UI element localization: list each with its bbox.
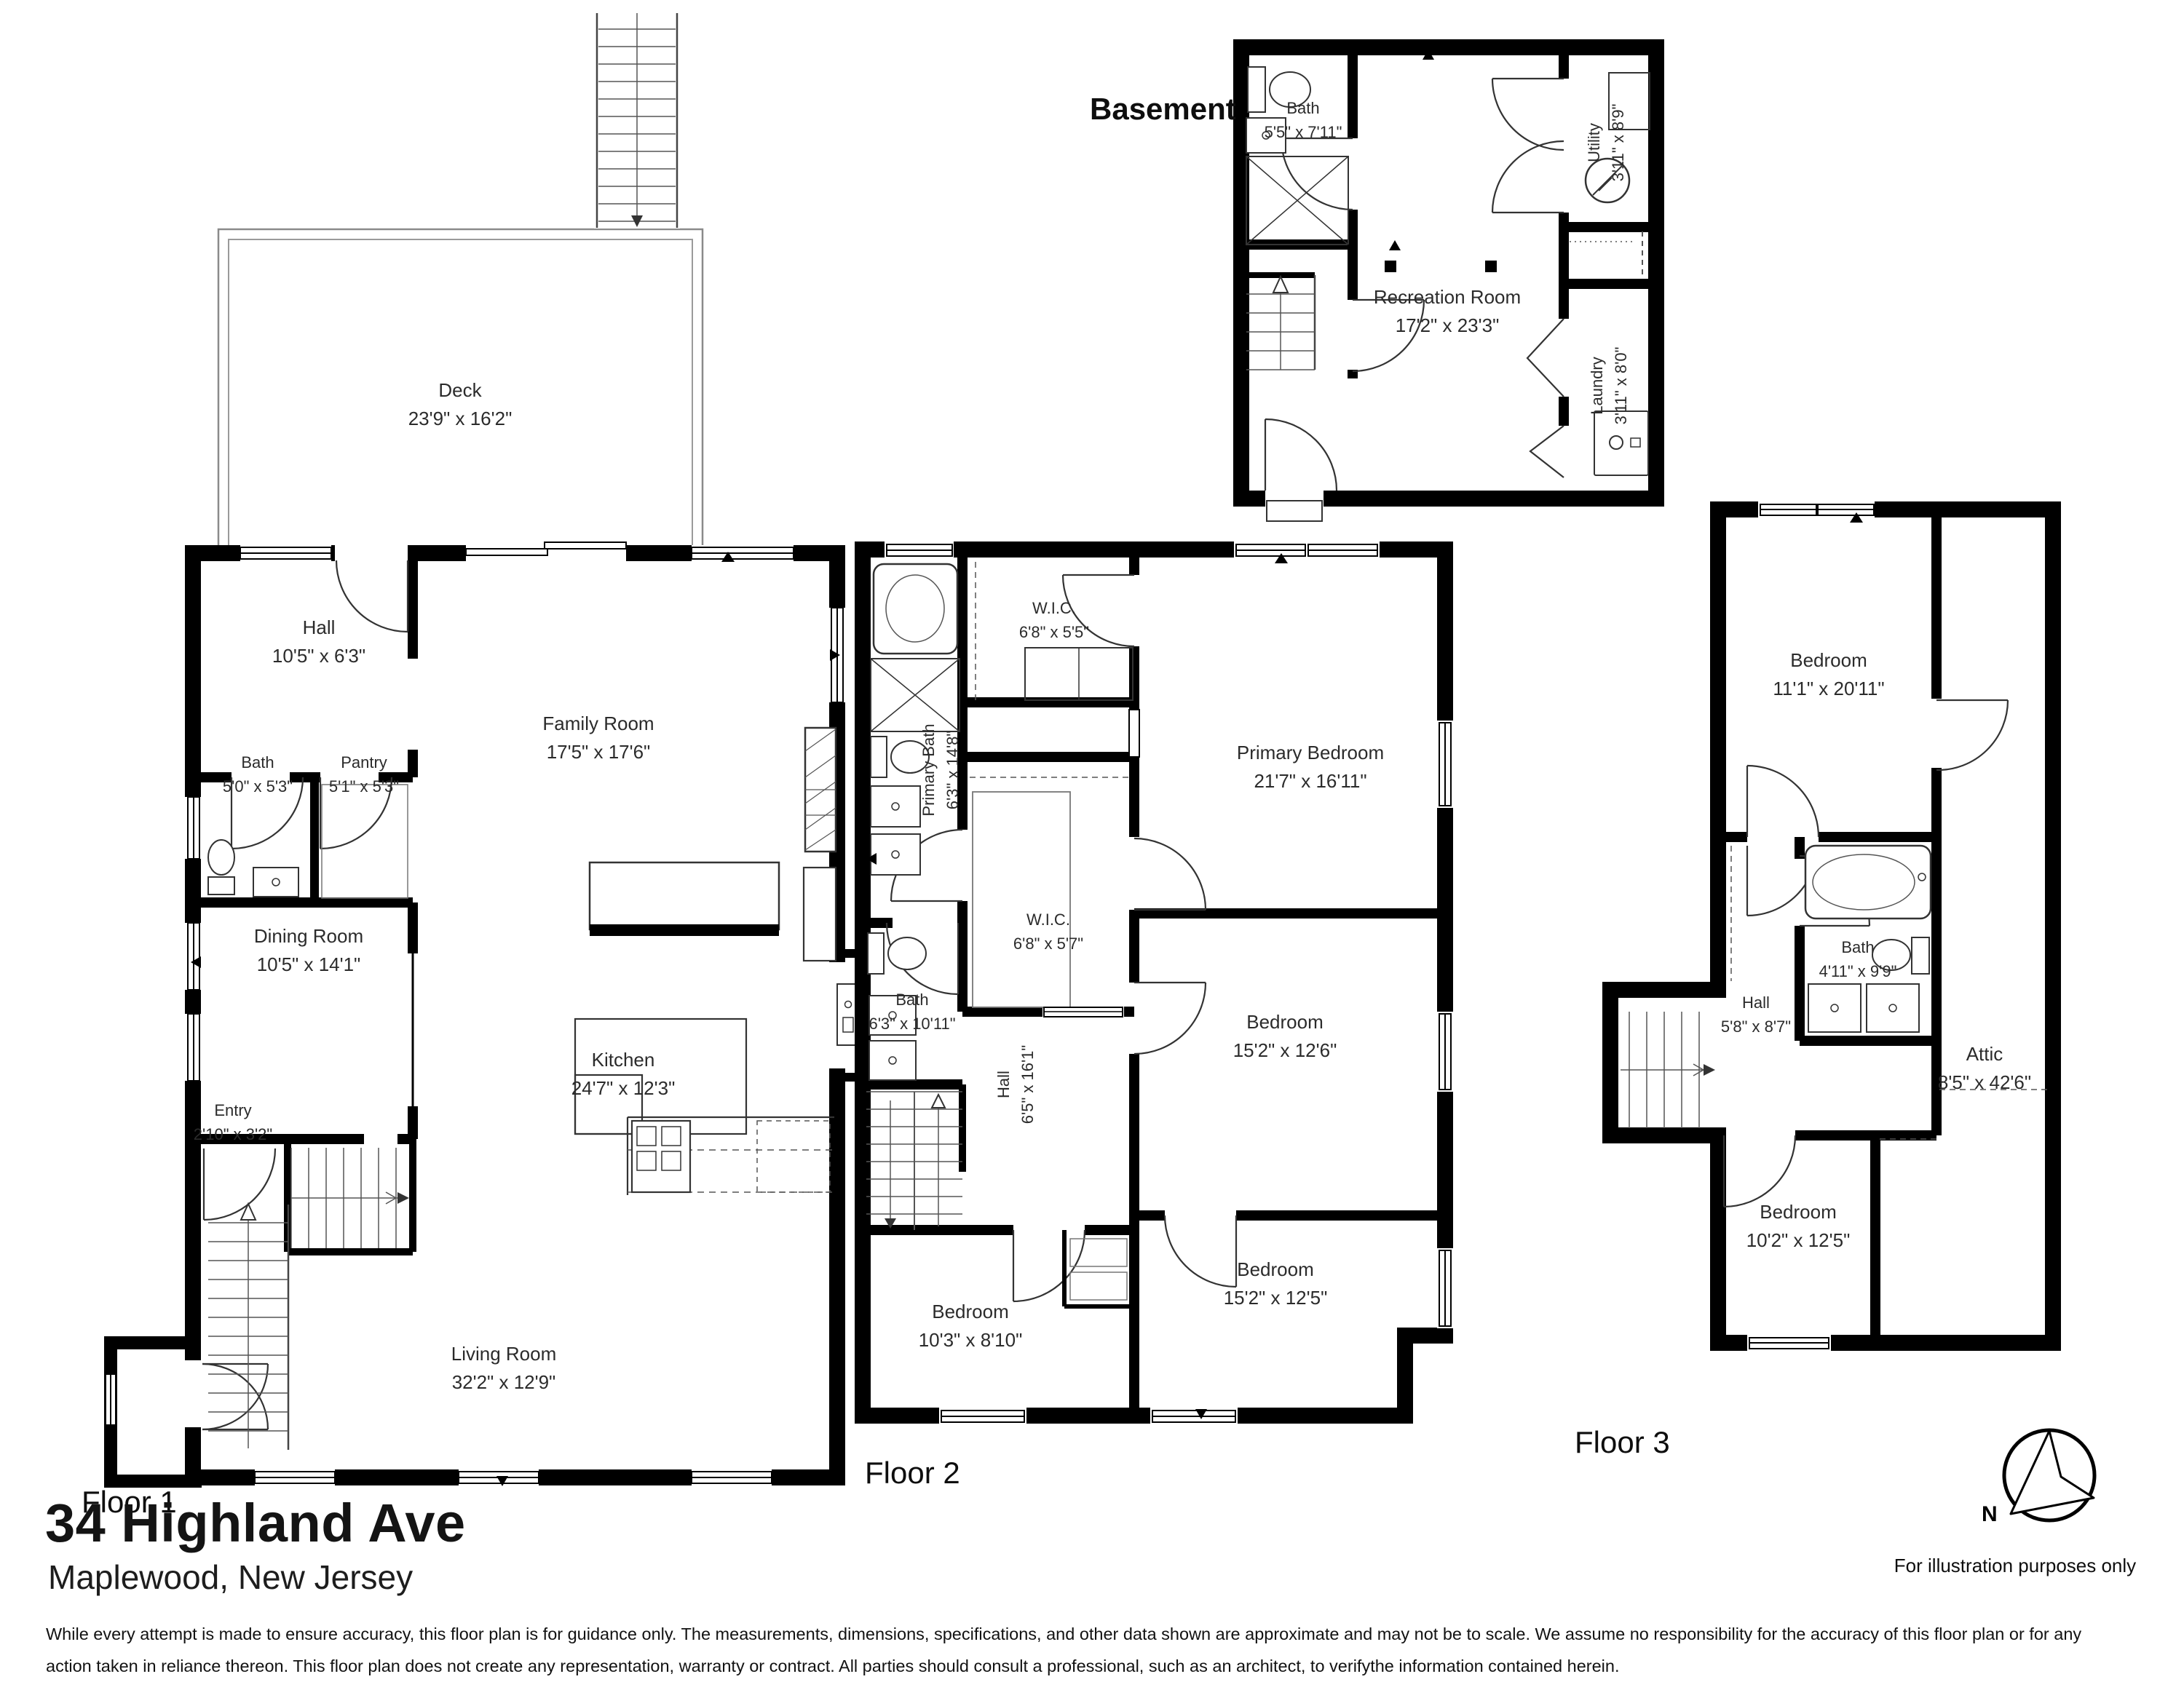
disclaimer-line-1: While every attempt is made to ensure ac… xyxy=(46,1624,2143,1644)
room-label-deck: Deck 23'9" x 16'2" xyxy=(408,376,513,433)
room-label-bath-f3: Bath 4'11" x 9'9" xyxy=(1819,935,1897,983)
room-label-bath-f1: Bath 5'0" x 5'3" xyxy=(223,750,293,798)
room-label-primary-bath: Primary Bath 6'3" x 14'8" xyxy=(917,723,965,816)
room-label-dining-room: Dining Room 10'5" x 14'1" xyxy=(254,922,363,979)
floorplan-drawing xyxy=(0,0,2184,1698)
room-label-bedroom-f2-a: Bedroom 15'2" x 12'6" xyxy=(1233,1008,1337,1065)
floorplan-page: Deck 23'9" x 16'2" Hall 10'5" x 6'3" Bat… xyxy=(0,0,2184,1698)
room-label-wic-1: W.I.C. 6'8" x 5'5" xyxy=(1019,596,1089,644)
compass-north-label: N xyxy=(1982,1502,1998,1527)
room-label-primary-bedroom: Primary Bedroom 21'7" x 16'11" xyxy=(1237,739,1384,796)
room-label-hall-f1: Hall 10'5" x 6'3" xyxy=(272,614,365,670)
room-label-bath-basement: Bath 5'5" x 7'11" xyxy=(1265,96,1342,144)
room-label-hall-f3: Hall 5'8" x 8'7" xyxy=(1721,991,1791,1039)
room-label-bedroom-f2-c: Bedroom 15'2" x 12'5" xyxy=(1224,1255,1328,1312)
property-location: Maplewood, New Jersey xyxy=(48,1558,413,1597)
floor1-plan xyxy=(106,12,866,1486)
compass-icon xyxy=(2004,1430,2094,1520)
room-label-family-room: Family Room 17'5" x 17'6" xyxy=(542,710,654,766)
room-label-hall-f2: Hall 6'5" x 16'1" xyxy=(992,1045,1040,1124)
room-label-entry: Entry 2'10" x 3'2" xyxy=(194,1098,272,1146)
room-label-pantry: Pantry 5'1" x 5'3" xyxy=(329,750,399,798)
room-label-bedroom-f2-b: Bedroom 10'3" x 8'10" xyxy=(919,1298,1023,1354)
room-label-recreation-room: Recreation Room 17'2" x 23'3" xyxy=(1374,283,1521,340)
room-label-laundry: Laundry 3'11" x 8'0" xyxy=(1585,347,1633,425)
property-address: 34 Highland Ave xyxy=(45,1492,466,1554)
room-label-bedroom-f3-bottom: Bedroom 10'2" x 12'5" xyxy=(1746,1198,1851,1255)
illustration-note: For illustration purposes only xyxy=(1891,1555,2139,1577)
room-label-kitchen: Kitchen 24'7" x 12'3" xyxy=(571,1046,676,1103)
room-label-wic-2: W.I.C. 6'8" x 5'7" xyxy=(1013,908,1083,956)
disclaimer-line-2: action taken in reliance thereon. This f… xyxy=(46,1657,2143,1676)
room-label-living-room: Living Room 32'2" x 12'9" xyxy=(451,1340,557,1397)
room-label-utility: Utility 3'11" x 8'9" xyxy=(1582,104,1630,182)
room-label-bath-f2: Bath 6'3" x 10'11" xyxy=(869,988,955,1036)
floor3-label: Floor 3 xyxy=(1575,1425,1670,1460)
floor2-label: Floor 2 xyxy=(865,1456,960,1491)
floor2-plan xyxy=(863,541,1453,1424)
basement-label: Basement xyxy=(1090,92,1236,127)
room-label-attic: Attic 8'5" x 42'6" xyxy=(1938,1040,2031,1097)
room-label-bedroom-f3-top: Bedroom 11'1" x 20'11" xyxy=(1773,646,1884,703)
